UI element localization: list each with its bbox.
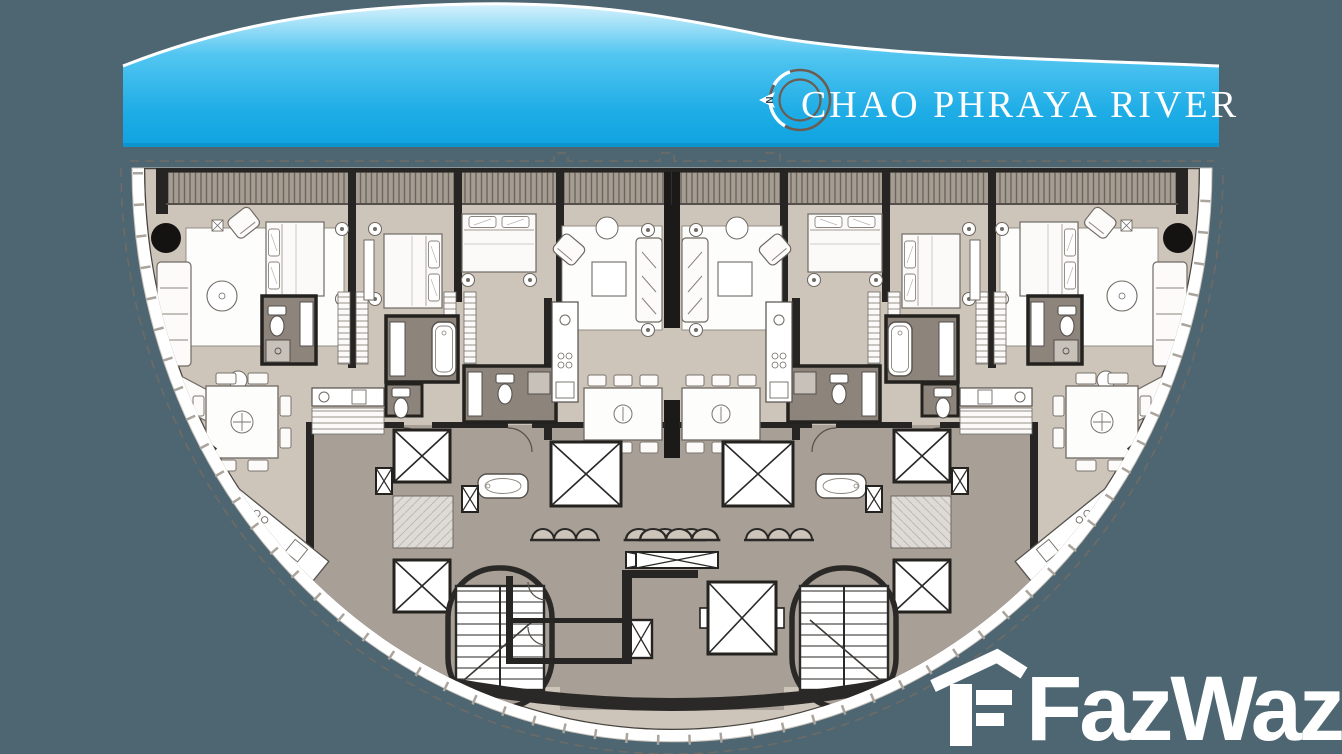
service-elevator (700, 582, 784, 654)
floorplan-svg: N CHAO PHRAYA RIVER (0, 0, 1342, 754)
river-label: CHAO PHRAYA RIVER (801, 84, 1239, 126)
floorplan-image: N CHAO PHRAYA RIVER (0, 0, 1342, 754)
compass-letter: N (765, 96, 776, 103)
shaft (630, 620, 652, 658)
brand-name: FazWaz (1026, 658, 1342, 754)
river-band-edge (123, 143, 1219, 147)
